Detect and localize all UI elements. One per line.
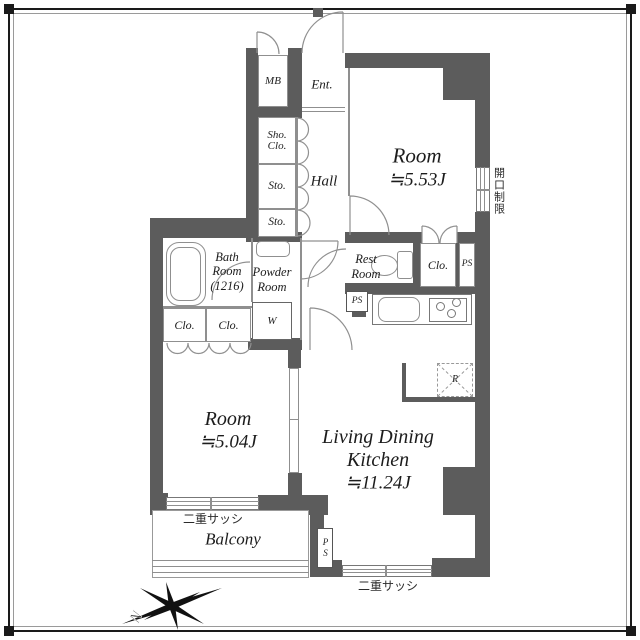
opening-restriction-label: 開口制限	[494, 167, 505, 215]
bedroom-lower-name: Room	[205, 409, 252, 429]
hall-label: Hall	[311, 175, 338, 190]
wall	[288, 473, 302, 495]
pipe-shaft-balcony: PS	[317, 528, 333, 568]
meter-box: MB	[258, 55, 288, 107]
rest-room-label: Room	[351, 268, 380, 281]
kitchen-sink	[378, 297, 420, 322]
closet-left-label: Clo.	[174, 319, 194, 331]
double-sash-label-ldk: 二重サッシ	[358, 580, 418, 592]
partition-line	[348, 68, 350, 196]
wall	[246, 48, 258, 108]
pipe-shaft-upper: PS	[459, 243, 475, 287]
shoes-closet: Sho.Clo.	[258, 117, 296, 164]
double-sash-label-bedroom: 二重サッシ	[183, 513, 243, 525]
bedroom-lower-size: ≒5.04J	[199, 433, 257, 452]
window-bedroom-lower	[166, 497, 259, 510]
stove-burner	[447, 309, 456, 318]
wall	[345, 232, 422, 243]
pipe-shaft-mid: PS	[346, 291, 368, 312]
frame-corner	[626, 4, 636, 14]
meter-box-label: MB	[265, 76, 281, 87]
wall-bottom-right	[432, 558, 490, 577]
window-line	[166, 505, 259, 506]
wall	[413, 243, 420, 287]
powder-room-label: Powder	[253, 266, 292, 279]
bedroom-upper-name: Room	[393, 146, 442, 167]
window-line	[342, 569, 432, 570]
ldk-name: Kitchen	[347, 450, 409, 470]
window-line	[342, 572, 432, 573]
washbasin	[256, 241, 290, 257]
storage-upper-label: Sto.	[268, 181, 286, 193]
frame-corner	[4, 4, 14, 14]
storage-door-line	[296, 117, 298, 237]
fridge-label: R	[452, 375, 458, 385]
closet-upper-room: Clo.	[420, 243, 456, 287]
balcony-label: Balcony	[205, 531, 261, 548]
bath-label: (1216)	[210, 280, 243, 293]
bedroom-upper-size: ≒5.53J	[388, 171, 446, 190]
window-mullion	[210, 497, 212, 510]
wall-outer-right	[475, 68, 490, 168]
frame-corner	[4, 626, 14, 636]
balcony-railing	[152, 572, 309, 573]
fridge-space: R	[437, 363, 473, 397]
window-mullion	[385, 565, 387, 577]
window-line	[166, 501, 259, 502]
bath-label: Room	[212, 265, 241, 278]
balcony-railing	[152, 560, 309, 561]
ldk-size: ≒11.24J	[345, 474, 411, 493]
bathtub-inner	[170, 247, 201, 301]
storage-upper: Sto.	[258, 164, 296, 209]
wall-fridge-nook	[402, 397, 475, 402]
sliding-door	[289, 368, 299, 473]
shoes-closet-label: Clo.	[268, 140, 287, 152]
sliding-door-tick	[289, 419, 299, 420]
pipe-shaft-label: PS	[462, 260, 473, 270]
wall-outer-right	[475, 212, 490, 577]
ldk-name: Living Dining	[322, 427, 434, 447]
closet-upper-room-label: Clo.	[428, 259, 448, 271]
entrance-step-line	[302, 107, 345, 108]
closet-left: Clo.	[163, 308, 206, 342]
wall-pillar	[443, 467, 475, 515]
rest-room-label: Rest	[355, 253, 377, 266]
wall-step-block	[443, 68, 475, 100]
storage-lower-label: Sto.	[268, 217, 286, 229]
wall-top	[345, 53, 490, 68]
toilet-tank	[397, 251, 413, 279]
stove-burner	[452, 298, 461, 307]
washer-label: W	[267, 316, 276, 327]
stove-burner	[436, 302, 445, 311]
window-mullion	[476, 189, 490, 191]
balcony-railing	[152, 566, 309, 567]
floor-plan: MB Sho.Clo. Sto. Sto. W Clo. Clo. PS Clo…	[0, 0, 640, 640]
entrance-step-line	[302, 111, 345, 112]
wall	[150, 218, 258, 238]
bath-label: Bath	[215, 251, 239, 264]
storage-lower: Sto.	[258, 209, 296, 237]
frame-corner	[626, 626, 636, 636]
entrance-label: Ent.	[311, 78, 332, 91]
washer-space: W	[252, 302, 292, 340]
closet-right: Clo.	[206, 308, 251, 342]
wall	[288, 48, 302, 110]
wall-door-jamb	[313, 8, 323, 17]
wall-outer-left	[150, 238, 163, 515]
pipe-shaft-label: PS	[321, 537, 330, 559]
wall-fridge-nook	[402, 363, 406, 401]
wall	[288, 350, 301, 368]
powder-room-label: Room	[257, 281, 286, 294]
pipe-shaft-label: PS	[352, 297, 363, 307]
partition-line	[300, 238, 302, 340]
wall	[457, 232, 475, 243]
window-ldk	[342, 565, 432, 577]
closet-right-label: Clo.	[218, 319, 238, 331]
